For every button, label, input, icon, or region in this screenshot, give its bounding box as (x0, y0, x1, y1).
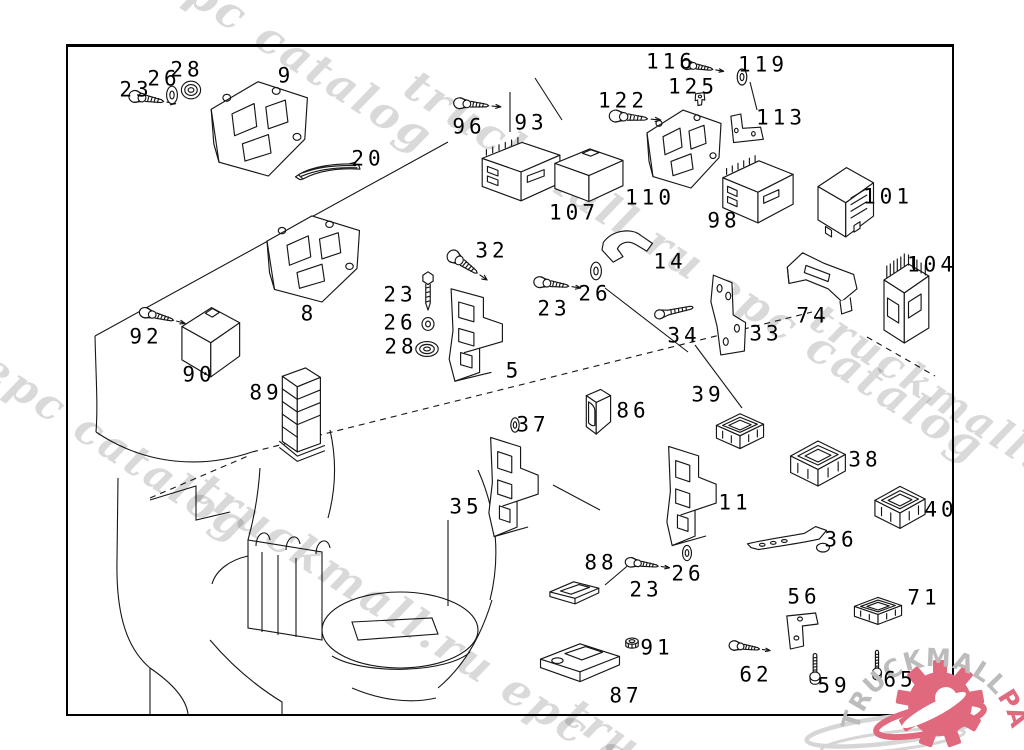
part-art-bracket-35 (489, 437, 538, 536)
part-art-box-107 (555, 149, 623, 202)
engine-outline-path (438, 600, 492, 688)
engine-outline-path (352, 618, 438, 640)
part-art-washer-28a (181, 81, 200, 99)
part-art-handle-20 (296, 164, 361, 180)
part-art-washer-26a (167, 86, 178, 104)
part-art-screw-23d (625, 557, 671, 573)
engine-outline-path (352, 688, 436, 701)
part-art-bracket-9 (211, 82, 307, 176)
part-art-housing-38 (791, 441, 846, 486)
engine-outline-path (322, 592, 478, 668)
part-art-clamp-14 (602, 231, 652, 262)
engine-outline-path (248, 468, 260, 540)
part-art-clip-125 (695, 93, 705, 106)
leader-line-dashed (867, 337, 935, 376)
part-art-lever-36 (748, 527, 830, 552)
part-art-bracket-113 (731, 114, 763, 143)
part-art-box-101 (818, 168, 874, 237)
part-art-screw-116 (681, 59, 725, 76)
part-art-screw-96 (453, 97, 501, 112)
part-art-housing-40 (875, 486, 925, 528)
leader-line (95, 336, 97, 432)
part-art-washer-26b (422, 318, 434, 331)
leader-line (96, 432, 252, 462)
part-art-box-98 (723, 156, 793, 223)
part-art-relay-86 (586, 389, 610, 434)
engine-outline-path (316, 541, 330, 554)
part-art-plate-33 (711, 275, 746, 355)
brand-logo: TRUCKMALLPARTS (0, 0, 1024, 750)
part-art-ecu-104 (884, 254, 929, 343)
part-art-bracket-74 (787, 253, 857, 314)
part-art-screw-23c (533, 276, 581, 293)
engine-outline-path (212, 556, 248, 584)
engine-outline-path (256, 533, 270, 546)
part-art-bolt-59 (810, 654, 820, 685)
part-art-bracket-56 (787, 613, 818, 649)
engine-outline-path (150, 668, 188, 714)
part-art-bolt-23b (423, 272, 433, 310)
part-art-fusebox-89 (280, 368, 325, 461)
part-art-washer-26c (591, 262, 602, 280)
part-art-bracket-5 (449, 289, 502, 381)
engine-outline-path (150, 486, 230, 520)
engine-outline-path (117, 478, 150, 714)
part-art-washer-119 (737, 69, 747, 85)
part-art-housing-39 (716, 414, 763, 449)
engine-outline-path (328, 430, 334, 518)
part-art-screw-62 (729, 640, 771, 655)
leader-line (553, 485, 600, 510)
part-art-screw-32 (445, 248, 491, 286)
leader-line (695, 345, 742, 408)
part-art-washer-26d (683, 545, 692, 560)
part-art-bracket-11 (667, 446, 716, 545)
part-art-module-87 (541, 644, 620, 682)
engine-block-art (117, 430, 496, 714)
part-art-washer-37 (511, 418, 519, 432)
part-art-box-93 (482, 138, 560, 201)
part-art-washer-28b (416, 342, 438, 357)
part-art-cap-91 (626, 638, 638, 648)
part-art-bracket-8 (267, 216, 360, 302)
parts-catalog-page: pc catalogtruckmall.ru epc catalogl epc … (0, 0, 1024, 750)
part-art-bracket-110 (647, 110, 721, 188)
part-art-box-90 (182, 308, 240, 377)
part-art-screw-122 (609, 110, 661, 126)
part-art-wedge-88 (550, 582, 599, 604)
part-art-screw-34 (654, 303, 694, 320)
engine-outline-path (210, 640, 282, 714)
part-art-screw-92 (138, 306, 186, 328)
logo-text: TRUCKMALLPARTS (0, 0, 1024, 733)
leader-line (605, 288, 688, 352)
leader-line (535, 78, 562, 120)
engine-outline-path (248, 540, 322, 640)
parts-diagram-art: TRUCKMALLPARTS (0, 0, 1024, 750)
leader-line (750, 82, 757, 110)
part-art-housing-71 (854, 597, 901, 624)
engine-outline-path (262, 552, 296, 637)
